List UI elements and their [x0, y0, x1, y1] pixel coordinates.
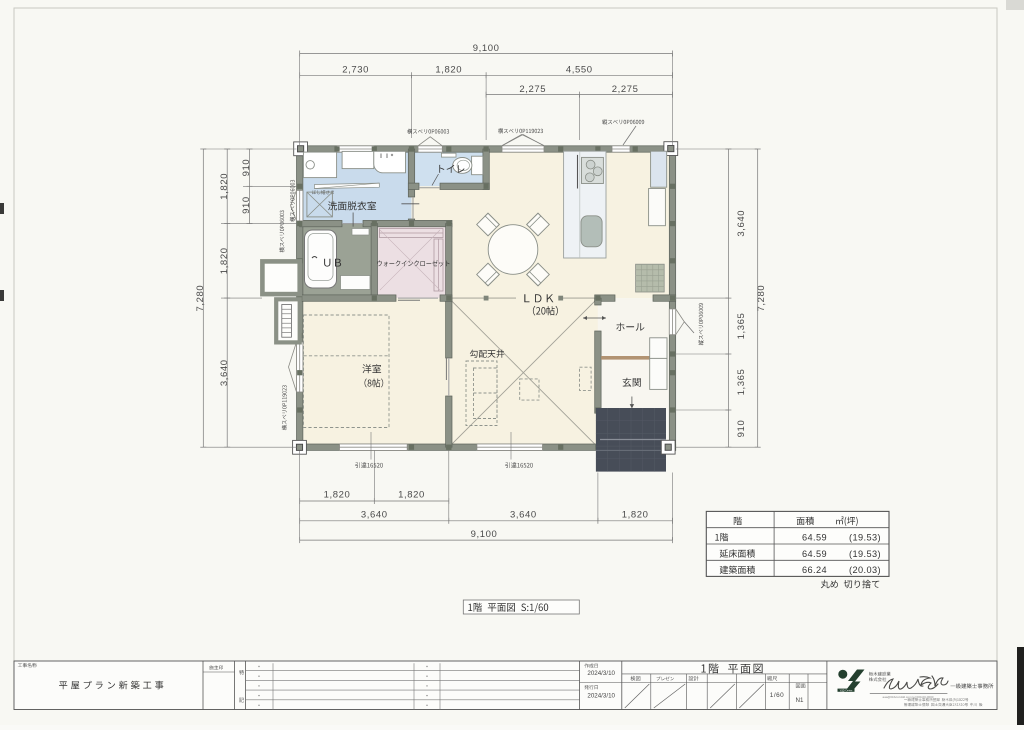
svg-text:1/60: 1/60: [770, 692, 784, 699]
svg-text:1,820: 1,820: [219, 247, 230, 274]
svg-text:2,730: 2,730: [342, 65, 369, 76]
svg-text:910: 910: [241, 159, 252, 177]
svg-text:1,820: 1,820: [219, 173, 230, 200]
svg-text:2,275: 2,275: [519, 84, 546, 95]
svg-text:(19.53): (19.53): [849, 549, 881, 559]
svg-text:1,820: 1,820: [398, 490, 425, 501]
svg-text:2024/3/10: 2024/3/10: [587, 693, 615, 700]
svg-text:N1: N1: [796, 697, 804, 704]
svg-text:1,820: 1,820: [435, 65, 462, 76]
svg-text:3,640: 3,640: [510, 509, 537, 520]
svg-text:910: 910: [241, 196, 252, 214]
svg-text:3,640: 3,640: [736, 210, 747, 237]
svg-text:YSD Center: YSD Center: [840, 689, 853, 692]
svg-text:66.24: 66.24: [802, 565, 827, 575]
svg-text:1,820: 1,820: [324, 490, 351, 501]
svg-text:1,820: 1,820: [622, 509, 649, 520]
svg-text:1,365: 1,365: [736, 313, 747, 340]
svg-text:(20.03): (20.03): [849, 565, 881, 575]
svg-text:1,365: 1,365: [736, 369, 747, 396]
svg-text:7,280: 7,280: [756, 285, 767, 312]
svg-text:4,550: 4,550: [566, 65, 593, 76]
svg-text:2,275: 2,275: [612, 84, 639, 95]
svg-text:3,640: 3,640: [219, 359, 230, 386]
svg-text:(19.53): (19.53): [849, 533, 881, 543]
svg-text:910: 910: [736, 420, 747, 438]
svg-text:64.59: 64.59: [802, 533, 827, 543]
svg-text:9,100: 9,100: [473, 43, 500, 54]
svg-text:2024/3/10: 2024/3/10: [587, 670, 615, 677]
svg-text:9,100: 9,100: [471, 529, 498, 540]
svg-text:64.59: 64.59: [802, 549, 827, 559]
svg-text:3,640: 3,640: [361, 509, 388, 520]
svg-text:7,280: 7,280: [195, 285, 206, 312]
